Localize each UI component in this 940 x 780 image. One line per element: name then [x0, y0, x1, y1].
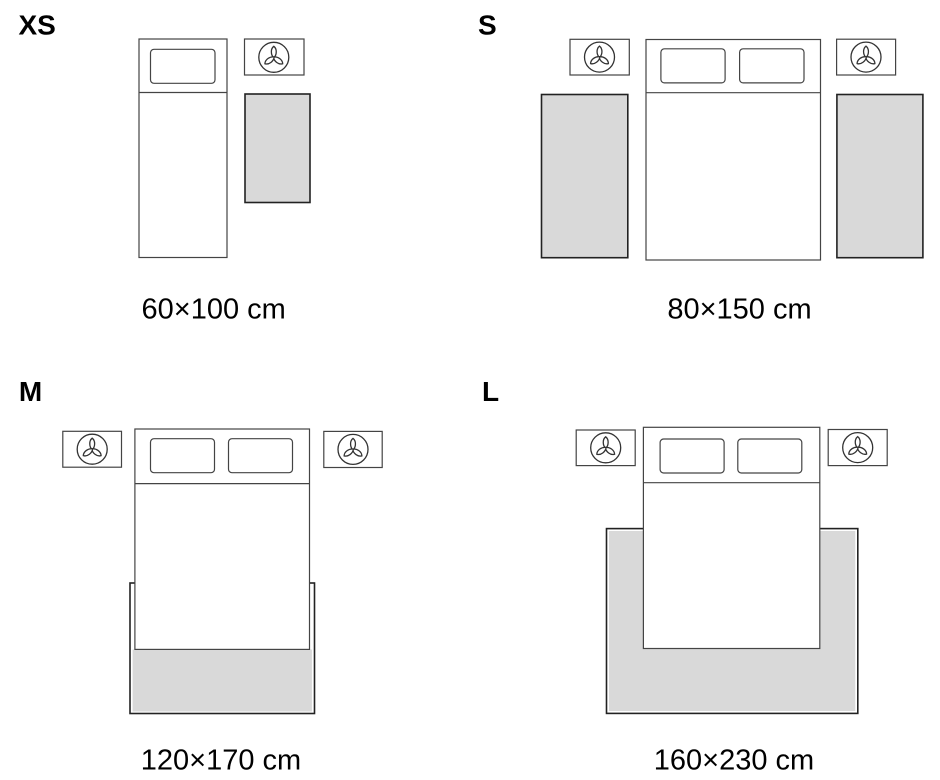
svg-text:M: M	[19, 376, 42, 407]
svg-text:80×150 cm: 80×150 cm	[667, 294, 811, 326]
svg-text:160×230 cm: 160×230 cm	[654, 745, 814, 777]
svg-text:XS: XS	[19, 10, 56, 41]
svg-text:120×170 cm: 120×170 cm	[141, 745, 301, 777]
svg-text:60×100 cm: 60×100 cm	[142, 294, 286, 326]
svg-text:S: S	[478, 10, 497, 41]
svg-text:L: L	[482, 376, 499, 407]
